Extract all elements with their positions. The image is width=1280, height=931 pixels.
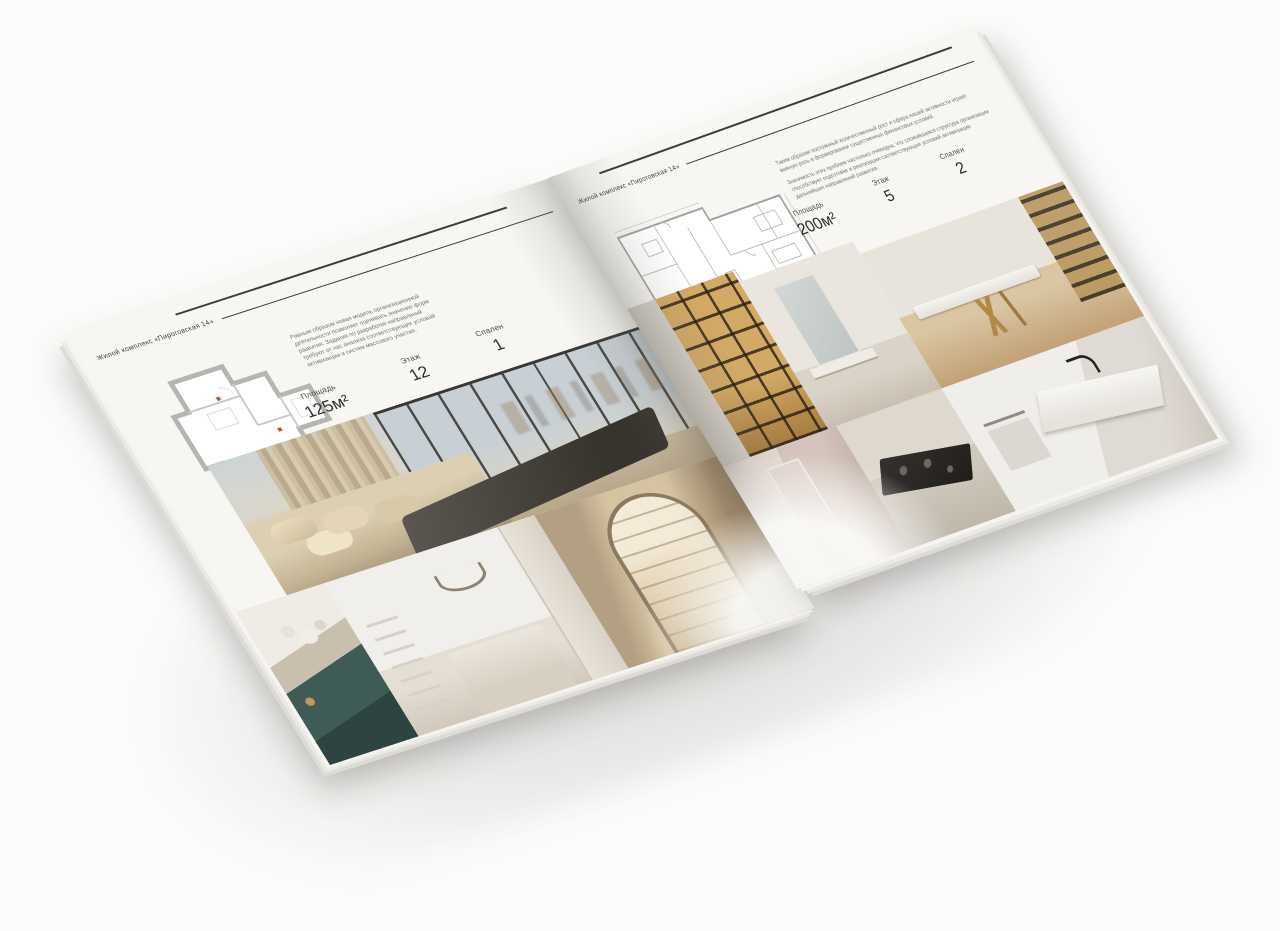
arched-niche: [593, 485, 765, 652]
left-page-top-rule: [175, 207, 507, 315]
stat-bedrooms-left: Спален 1: [459, 317, 532, 363]
stat-floor-left: Этаж 12: [382, 347, 450, 391]
pillows: [266, 513, 322, 548]
marble-counter: [1037, 365, 1164, 433]
hall-doorway: [766, 458, 866, 581]
wall-wreath: [434, 562, 493, 597]
brochure-mockup-scene: Жилой комплекс «Пироговская 14» Равным о…: [0, 0, 1280, 835]
gas-cooktop: [880, 443, 974, 497]
black-faucet: [1065, 352, 1101, 381]
